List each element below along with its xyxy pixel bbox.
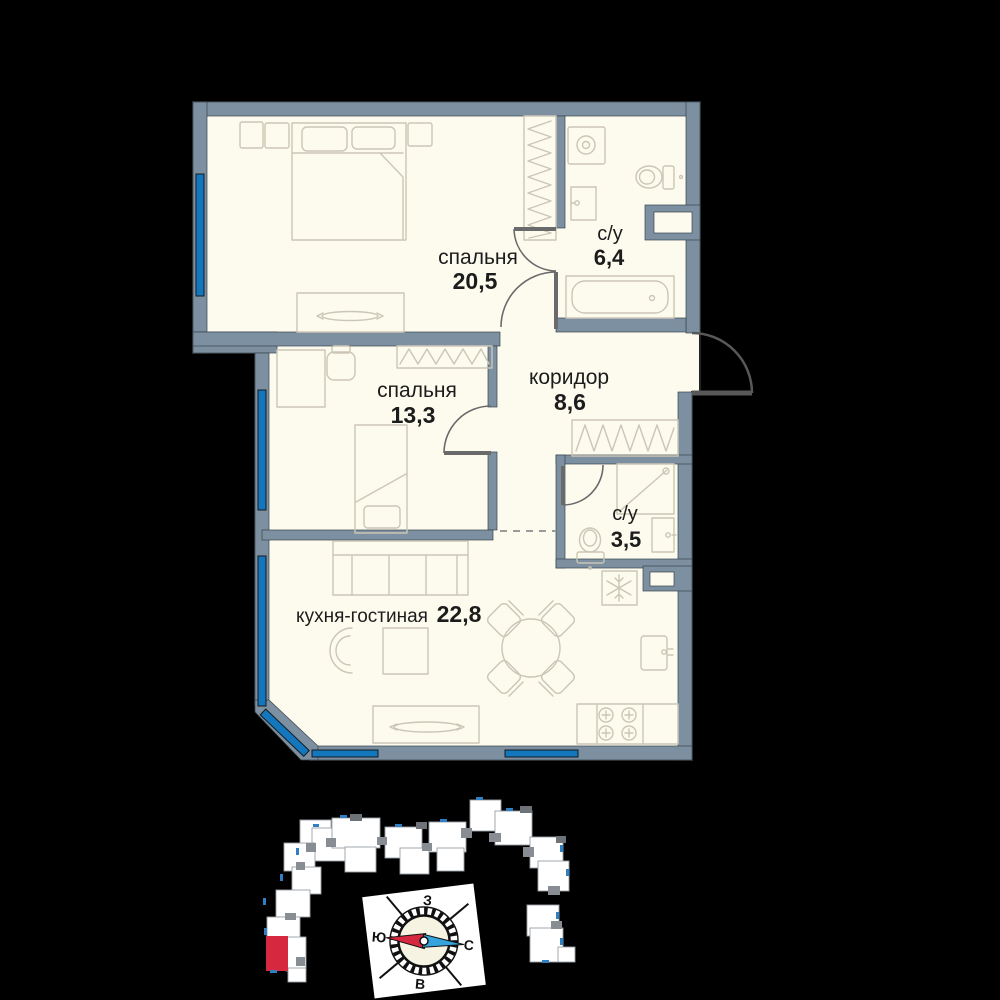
room-name-kitchen: кухня-гостиная bbox=[296, 606, 428, 627]
window bbox=[258, 556, 266, 706]
room-name-bedroom-2: спальня bbox=[377, 379, 457, 402]
duct-icon bbox=[643, 566, 692, 591]
room-area-corridor: 8,6 bbox=[554, 389, 586, 415]
room-name-corridor: коридор bbox=[529, 366, 609, 389]
room-area-bedroom-1: 20,5 bbox=[453, 268, 498, 294]
compass-pivot bbox=[420, 937, 429, 946]
room-name-bedroom-1: спальня bbox=[438, 246, 518, 269]
compass-label-south: Ю bbox=[371, 928, 387, 945]
room-name-bathroom-1: с/у bbox=[597, 223, 623, 245]
window bbox=[312, 750, 378, 757]
floorplan-canvas: спальня 20,5 с/у 6,4 спальня 13,3 коридо… bbox=[0, 0, 1000, 1000]
window bbox=[505, 750, 578, 757]
room-area-bedroom-2: 13,3 bbox=[391, 402, 436, 428]
compass-label-east: В bbox=[415, 975, 426, 992]
compass-label-north: С bbox=[463, 937, 474, 954]
duct-icon bbox=[645, 205, 700, 240]
window bbox=[196, 174, 204, 296]
room-name-bathroom-2: с/у bbox=[612, 503, 638, 525]
window bbox=[258, 390, 266, 510]
compass-rose: З Ю С В bbox=[356, 875, 490, 1000]
room-area-bathroom-2: 3,5 bbox=[611, 527, 642, 552]
compass-label-west: З bbox=[423, 892, 433, 909]
floorplan-page: спальня 20,5 с/у 6,4 спальня 13,3 коридо… bbox=[0, 0, 1000, 1000]
room-area-kitchen: 22,8 bbox=[437, 601, 482, 627]
highlighted-unit bbox=[266, 936, 288, 971]
room-area-bathroom-1: 6,4 bbox=[594, 245, 625, 270]
apartment-plan: спальня 20,5 с/у 6,4 спальня 13,3 коридо… bbox=[193, 102, 752, 760]
